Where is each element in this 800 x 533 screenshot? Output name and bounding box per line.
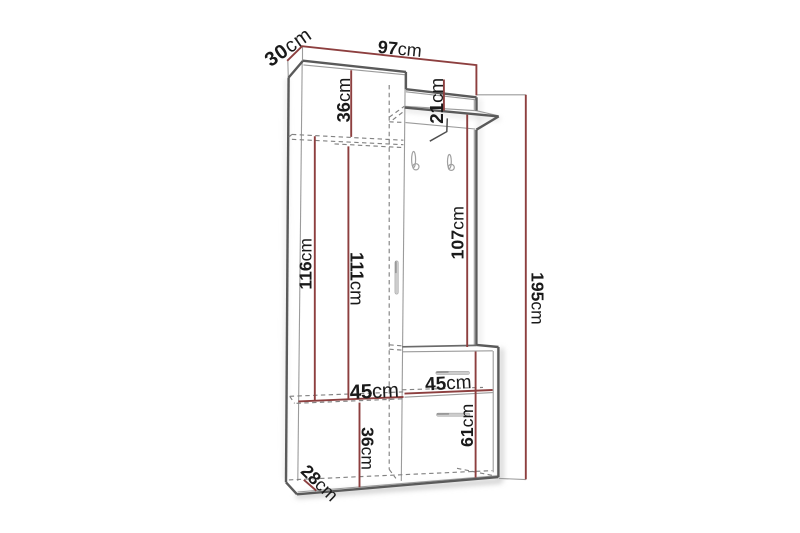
svg-text:61cm: 61cm — [457, 404, 477, 447]
svg-text:116cm: 116cm — [296, 238, 316, 290]
svg-text:107cm: 107cm — [447, 206, 467, 259]
svg-text:21cm: 21cm — [426, 78, 447, 124]
svg-text:195cm: 195cm — [528, 272, 548, 325]
svg-text:45cm: 45cm — [425, 372, 473, 395]
svg-text:97cm: 97cm — [377, 37, 423, 61]
svg-text:36cm: 36cm — [358, 427, 378, 470]
svg-text:45cm: 45cm — [349, 378, 399, 403]
svg-text:36cm: 36cm — [333, 78, 354, 123]
svg-text:111cm: 111cm — [347, 252, 368, 306]
